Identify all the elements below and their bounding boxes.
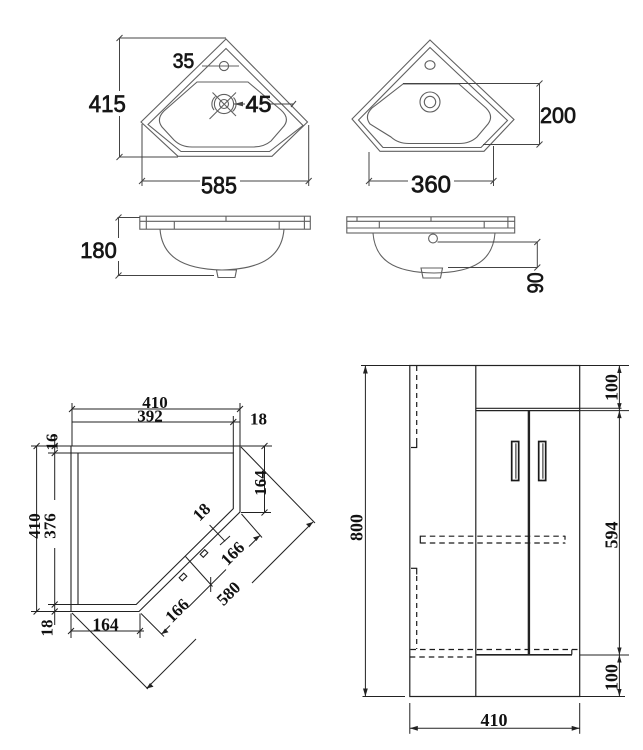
svg-text:800: 800 (347, 514, 367, 541)
svg-text:410: 410 (481, 710, 508, 730)
svg-text:360: 360 (411, 172, 451, 199)
svg-text:180: 180 (80, 238, 117, 263)
svg-text:100: 100 (602, 664, 622, 691)
svg-text:415: 415 (89, 91, 126, 118)
svg-text:585: 585 (201, 173, 237, 200)
svg-text:164: 164 (92, 614, 119, 634)
svg-text:35: 35 (173, 50, 195, 73)
svg-text:16: 16 (43, 434, 62, 451)
svg-text:100: 100 (602, 374, 622, 401)
svg-text:392: 392 (137, 406, 163, 425)
svg-text:45: 45 (246, 91, 272, 117)
svg-text:18: 18 (38, 620, 57, 637)
svg-text:376: 376 (41, 513, 60, 539)
svg-text:18: 18 (250, 410, 267, 429)
svg-text:200: 200 (540, 103, 576, 128)
svg-text:594: 594 (602, 522, 622, 549)
svg-text:90: 90 (523, 273, 548, 294)
